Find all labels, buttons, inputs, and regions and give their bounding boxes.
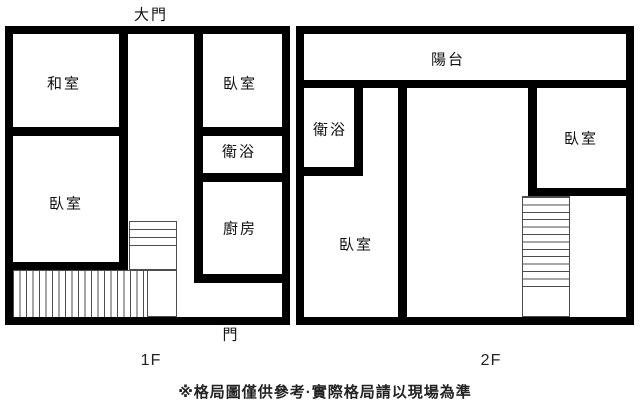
f1-door-label: 門 xyxy=(222,328,239,343)
f2-bath-bottom-wall xyxy=(304,167,363,176)
f2-room-label-balcony: 陽台 xyxy=(431,53,465,68)
f1-floor-name: 1F xyxy=(141,353,162,369)
f1-entrance-label: 大門 xyxy=(134,8,168,23)
f1-kitchen-bottom-wall xyxy=(194,274,282,283)
f1-stair-hatched-run xyxy=(13,270,148,317)
f1-room-label-bedroom-upper: 臥室 xyxy=(223,77,257,92)
f2-stair-hatched-run xyxy=(523,197,569,293)
f1-tatami-bedroom-divider-wall xyxy=(13,127,119,136)
f2-room-label-bedroom-left: 臥室 xyxy=(339,238,373,253)
disclaimer-note: ※格局圖僅供參考·實際格局請以現場為準 xyxy=(178,381,472,402)
f1-stair-upper-box xyxy=(129,221,177,270)
f2-bedroom-right-left-wall xyxy=(528,88,537,196)
f1-stair-tread-line xyxy=(130,237,176,238)
f2-bath-right-wall xyxy=(354,88,363,175)
f1-room-label-kitchen: 廚房 xyxy=(223,222,257,237)
f1-bedroom-bath-divider-wall xyxy=(203,127,282,136)
f1-corridor-right-wall xyxy=(194,34,203,283)
f2-room-label-bedroom-right: 臥室 xyxy=(564,132,598,147)
f1-stair-tread-line xyxy=(130,229,176,230)
f1-bath-kitchen-divider-wall xyxy=(203,173,282,182)
floor-plan-diagram: 大門 和室 臥室 衛浴 臥室 廚房 門 1F 陽台 衛浴 臥室 臥室 2F ※格… xyxy=(0,0,640,409)
f1-room-label-bedroom-lower: 臥室 xyxy=(49,197,83,212)
f1-stair-landing-box xyxy=(147,270,177,317)
f2-floor-name: 2F xyxy=(481,353,502,369)
f1-corridor-left-wall xyxy=(119,34,128,270)
f2-balcony-divider-wall xyxy=(304,80,626,88)
f1-room-label-bath: 衛浴 xyxy=(222,145,256,160)
f2-center-divider-wall xyxy=(398,88,407,317)
f1-room-label-tatami: 和室 xyxy=(47,77,81,92)
f2-bedroom-right-bottom-wall xyxy=(528,188,626,196)
f1-stair-tread-line xyxy=(130,245,176,246)
f2-stair-box xyxy=(522,196,570,317)
f2-room-label-bath: 衛浴 xyxy=(313,123,347,138)
